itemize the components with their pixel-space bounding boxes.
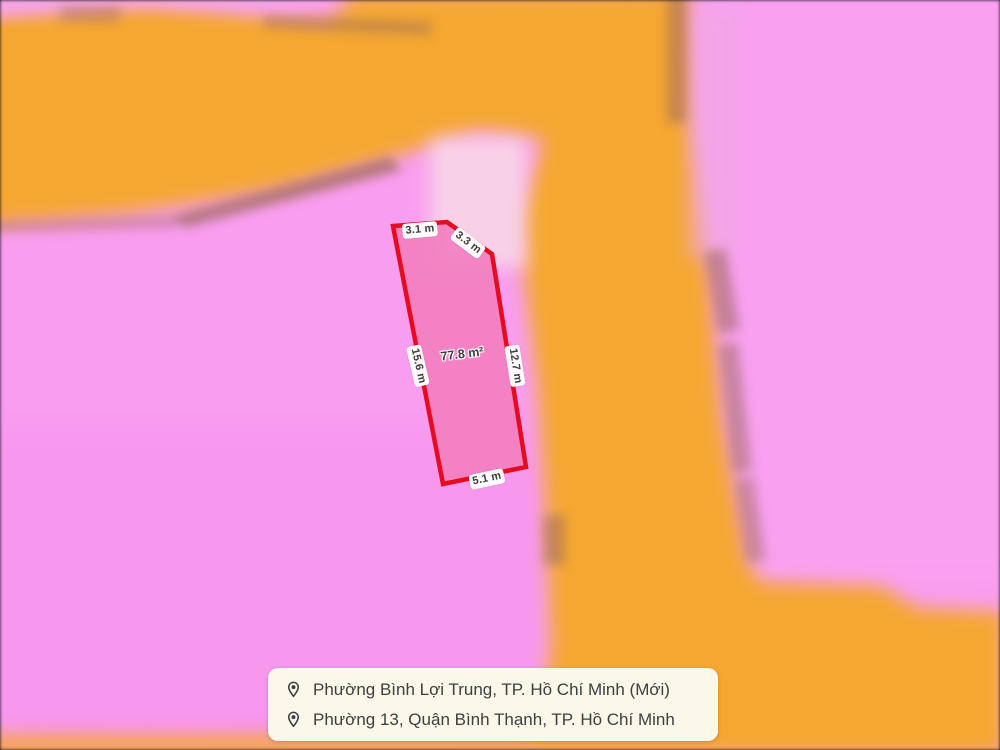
location-label-new: Phường Bình Lợi Trung, TP. Hồ Chí Minh (… [313,680,670,700]
location-row-new-ward[interactable]: Phường Bình Lợi Trung, TP. Hồ Chí Minh (… [268,675,718,705]
location-panel: Phường Bình Lợi Trung, TP. Hồ Chí Minh (… [268,668,718,741]
location-label-old: Phường 13, Quận Bình Thạnh, TP. Hồ Chí M… [313,710,675,730]
map-app-screen: 3.1 m 3.3 m 15.6 m 12.7 m 5.1 m 77.8 m² … [0,0,1000,750]
location-pin-icon [284,710,303,729]
dimension-label-top: 3.1 m [402,221,438,239]
location-pin-icon [284,680,303,699]
location-row-old-ward[interactable]: Phường 13, Quận Bình Thạnh, TP. Hồ Chí M… [268,705,718,735]
